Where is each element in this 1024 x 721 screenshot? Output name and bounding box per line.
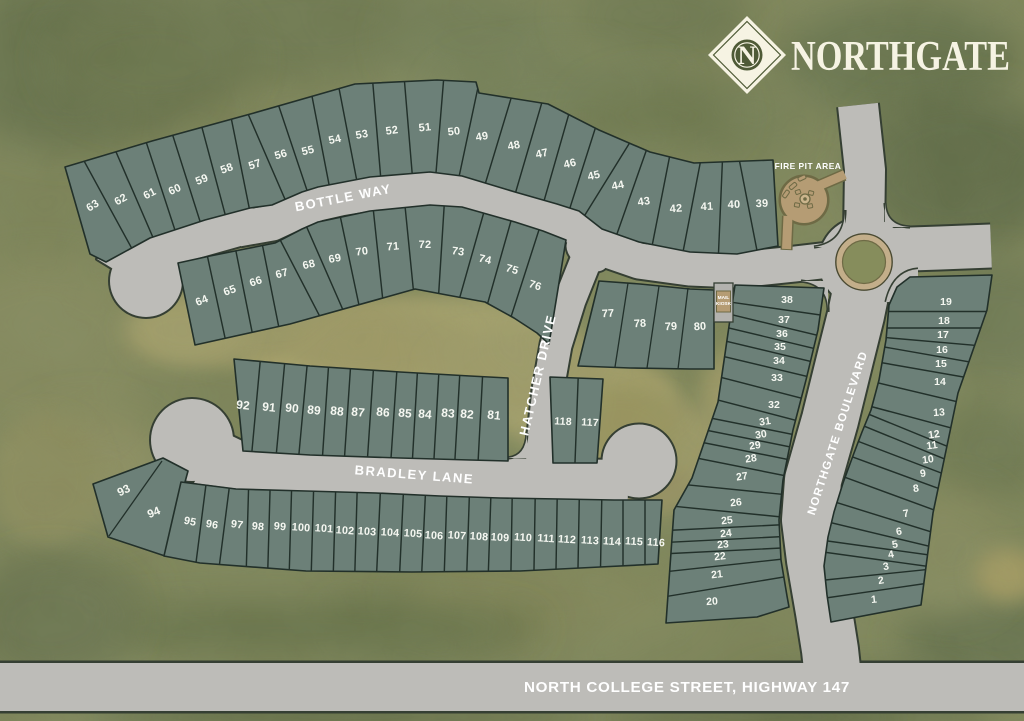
svg-text:41: 41 <box>700 201 713 213</box>
svg-text:108: 108 <box>469 530 488 543</box>
svg-text:115: 115 <box>625 535 644 548</box>
svg-text:48: 48 <box>507 139 522 153</box>
svg-text:105: 105 <box>403 527 422 540</box>
svg-text:25: 25 <box>721 514 734 527</box>
svg-text:80: 80 <box>694 321 707 334</box>
svg-text:82: 82 <box>460 406 475 421</box>
svg-text:72: 72 <box>419 239 432 251</box>
svg-text:26: 26 <box>730 496 743 509</box>
svg-text:39: 39 <box>755 198 768 210</box>
svg-text:103: 103 <box>357 525 376 538</box>
svg-text:53: 53 <box>355 128 370 142</box>
svg-text:50: 50 <box>447 125 461 138</box>
svg-text:51: 51 <box>418 121 432 134</box>
svg-text:88: 88 <box>330 403 345 418</box>
svg-text:10: 10 <box>921 453 934 467</box>
svg-text:107: 107 <box>447 529 466 542</box>
svg-text:99: 99 <box>273 520 286 533</box>
svg-text:MAIL: MAIL <box>718 295 730 301</box>
svg-text:49: 49 <box>475 130 489 144</box>
svg-text:112: 112 <box>558 533 577 546</box>
svg-text:40: 40 <box>727 199 740 211</box>
svg-text:118: 118 <box>554 415 572 428</box>
svg-text:73: 73 <box>451 245 465 259</box>
svg-text:28: 28 <box>744 452 757 466</box>
svg-text:98: 98 <box>251 520 265 533</box>
svg-text:86: 86 <box>376 404 391 419</box>
svg-text:14: 14 <box>934 376 946 388</box>
svg-text:34: 34 <box>773 355 785 367</box>
svg-text:17: 17 <box>937 329 949 341</box>
svg-text:106: 106 <box>424 529 443 542</box>
svg-text:13: 13 <box>933 406 946 419</box>
svg-text:KIOSK: KIOSK <box>716 301 732 307</box>
svg-text:35: 35 <box>774 341 786 353</box>
svg-text:20: 20 <box>706 595 719 608</box>
svg-text:21: 21 <box>711 568 724 581</box>
svg-text:37: 37 <box>778 314 790 326</box>
svg-text:92: 92 <box>236 397 251 412</box>
svg-text:100: 100 <box>291 521 310 534</box>
svg-text:32: 32 <box>768 399 780 411</box>
svg-text:91: 91 <box>262 399 277 414</box>
svg-text:111: 111 <box>537 532 555 545</box>
svg-text:71: 71 <box>386 240 400 253</box>
svg-text:16: 16 <box>936 344 948 356</box>
svg-text:FIRE PIT AREA: FIRE PIT AREA <box>775 161 842 171</box>
svg-text:NORTHGATE: NORTHGATE <box>791 34 1010 80</box>
svg-text:95: 95 <box>183 515 198 529</box>
svg-text:84: 84 <box>418 406 433 421</box>
svg-text:27: 27 <box>735 470 748 484</box>
svg-text:117: 117 <box>581 416 599 429</box>
svg-text:70: 70 <box>355 245 369 259</box>
svg-text:22: 22 <box>714 550 727 563</box>
svg-text:11: 11 <box>926 439 939 452</box>
svg-text:104: 104 <box>380 526 399 539</box>
svg-text:77: 77 <box>602 308 615 321</box>
svg-text:38: 38 <box>781 294 793 306</box>
svg-text:87: 87 <box>351 404 366 419</box>
svg-text:42: 42 <box>669 202 682 215</box>
svg-text:36: 36 <box>776 328 788 340</box>
svg-text:109: 109 <box>490 531 509 544</box>
svg-text:31: 31 <box>758 415 771 429</box>
svg-text:102: 102 <box>335 524 354 537</box>
svg-text:96: 96 <box>205 518 219 532</box>
svg-text:114: 114 <box>603 535 622 548</box>
svg-text:52: 52 <box>385 124 399 138</box>
svg-text:29: 29 <box>748 439 761 453</box>
svg-text:85: 85 <box>398 405 413 420</box>
svg-text:101: 101 <box>314 522 333 535</box>
svg-text:33: 33 <box>771 372 783 384</box>
svg-text:15: 15 <box>935 358 947 370</box>
svg-text:69: 69 <box>328 252 343 266</box>
svg-text:78: 78 <box>634 318 647 331</box>
svg-text:97: 97 <box>230 518 244 532</box>
svg-text:43: 43 <box>637 195 651 209</box>
svg-text:116: 116 <box>647 536 666 549</box>
svg-text:90: 90 <box>285 400 300 415</box>
svg-text:110: 110 <box>514 531 533 544</box>
svg-text:18: 18 <box>938 315 950 327</box>
svg-text:113: 113 <box>581 534 600 547</box>
svg-text:19: 19 <box>940 296 952 308</box>
svg-text:83: 83 <box>441 405 456 420</box>
svg-text:81: 81 <box>487 407 502 422</box>
svg-text:N: N <box>738 41 757 70</box>
svg-text:NORTH COLLEGE STREET, HIGHWAY: NORTH COLLEGE STREET, HIGHWAY 147 <box>524 679 850 696</box>
svg-text:89: 89 <box>307 402 322 417</box>
svg-text:23: 23 <box>717 538 730 551</box>
svg-text:79: 79 <box>665 321 678 334</box>
